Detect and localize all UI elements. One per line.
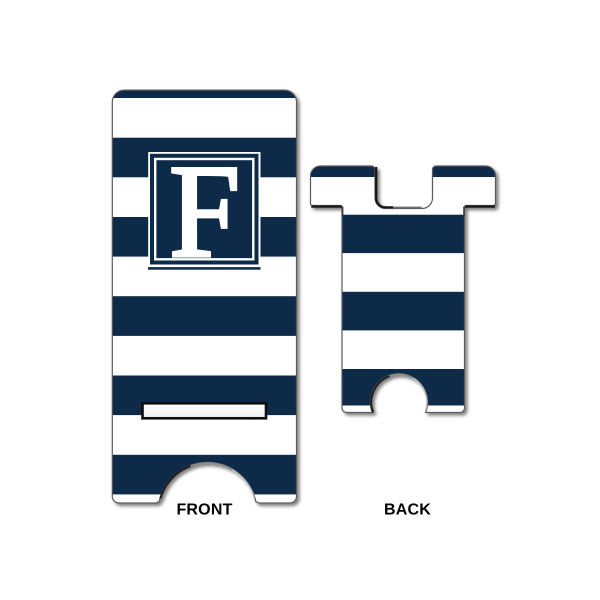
svg-text:FRONT: FRONT	[176, 501, 232, 518]
svg-text:BACK: BACK	[384, 501, 431, 518]
svg-text:F: F	[169, 138, 240, 286]
